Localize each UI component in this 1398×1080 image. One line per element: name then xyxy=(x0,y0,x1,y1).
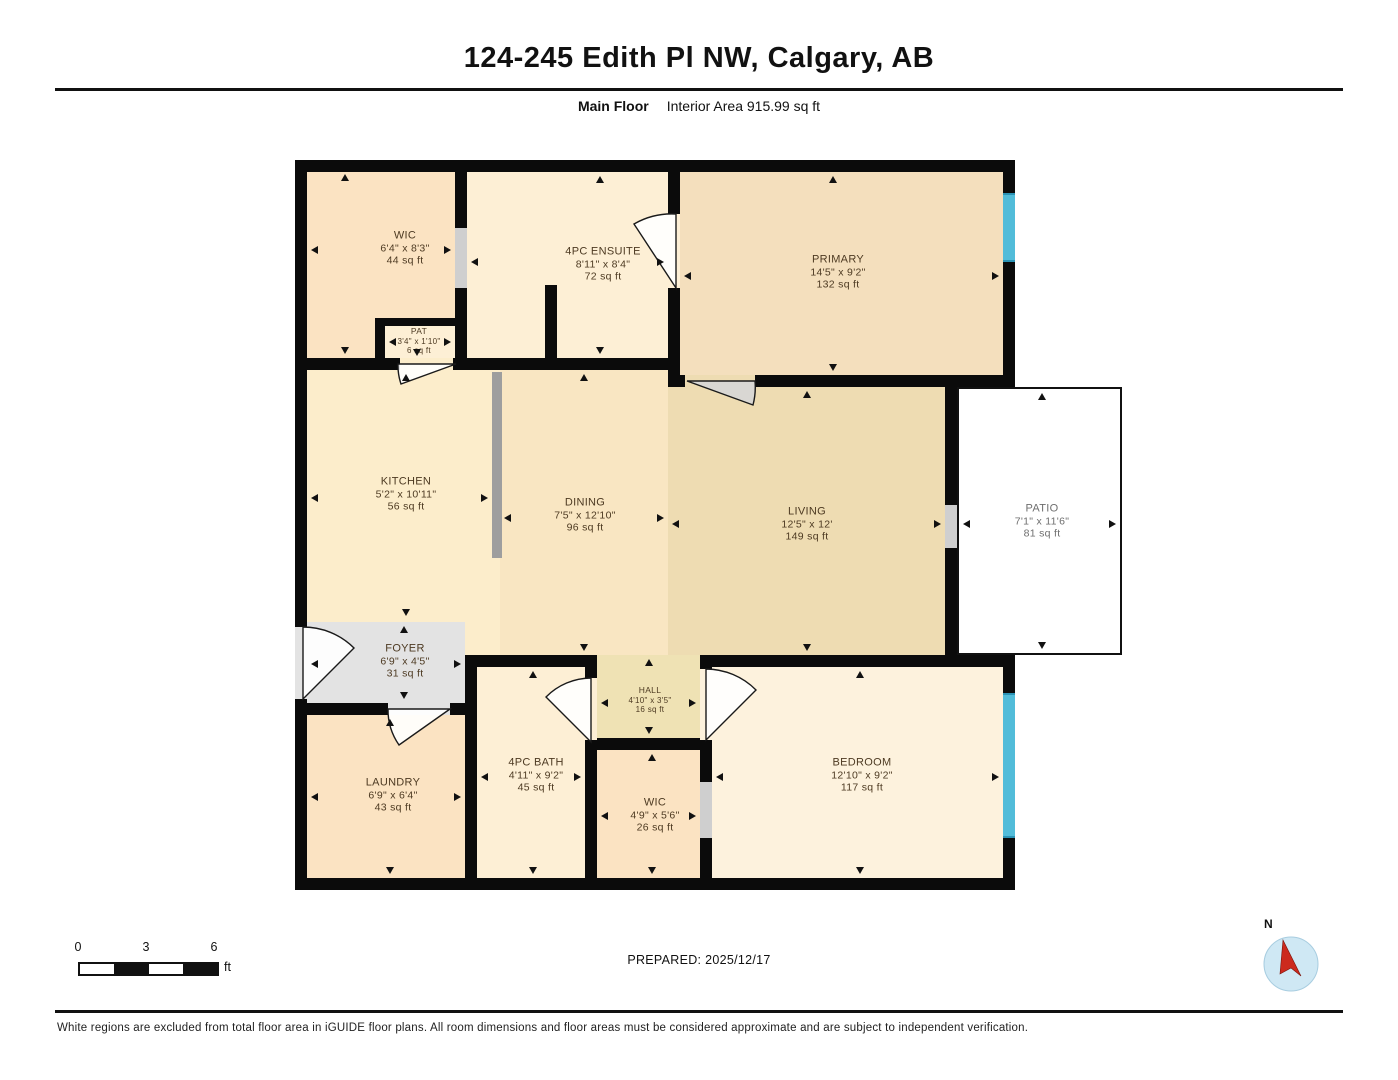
dimension-arrow xyxy=(311,660,318,668)
dimension-arrow xyxy=(413,349,421,356)
label-patio: PATIO7'1" x 11'6"81 sq ft xyxy=(1015,502,1070,540)
dimension-arrow xyxy=(803,644,811,651)
dimension-arrow xyxy=(389,338,396,346)
label-dining: DINING7'5" x 12'10"96 sq ft xyxy=(554,496,616,534)
dimension-arrow xyxy=(601,812,608,820)
label-foyer: FOYER6'9" x 4'5"31 sq ft xyxy=(380,642,429,680)
dimension-arrow xyxy=(596,176,604,183)
dimension-arrow xyxy=(684,272,691,280)
dimension-arrow xyxy=(689,812,696,820)
label-wic-top: WIC6'4" x 8'3"44 sq ft xyxy=(380,229,429,267)
label-primary: PRIMARY14'5" x 9'2"132 sq ft xyxy=(810,253,865,291)
dimension-arrow xyxy=(580,374,588,381)
scale-tick-0: 0 xyxy=(75,940,82,954)
dimension-arrow xyxy=(400,692,408,699)
dimension-arrow xyxy=(829,364,837,371)
dimension-arrow xyxy=(444,338,451,346)
compass-north-label: N xyxy=(1264,917,1273,931)
dimension-arrow xyxy=(1038,642,1046,649)
dimension-arrow xyxy=(504,514,511,522)
label-laundry: LAUNDRY6'9" x 6'4"43 sq ft xyxy=(366,776,420,814)
label-bedroom: BEDROOM12'10" x 9'2"117 sq ft xyxy=(831,756,893,794)
label-living: LIVING12'5" x 12'149 sq ft xyxy=(781,505,832,543)
dimension-arrow xyxy=(454,793,461,801)
footer-divider xyxy=(55,1010,1343,1013)
dimension-arrow xyxy=(689,699,696,707)
dimension-arrow xyxy=(657,514,664,522)
label-hall: HALL4'10" x 3'5"16 sq ft xyxy=(628,686,671,715)
dimension-arrow xyxy=(481,773,488,781)
dimension-arrow xyxy=(648,867,656,874)
dimension-arrow xyxy=(1038,393,1046,400)
dimension-arrow xyxy=(803,391,811,398)
dimension-arrow xyxy=(341,174,349,181)
prepared-date: PREPARED: 2025/12/17 xyxy=(549,953,849,967)
label-kitchen: KITCHEN5'2" x 10'11"56 sq ft xyxy=(376,475,437,513)
dimension-arrow xyxy=(657,258,664,266)
dimension-arrow xyxy=(963,520,970,528)
dimension-arrow xyxy=(386,719,394,726)
dimension-arrow xyxy=(672,520,679,528)
dimension-arrow xyxy=(311,246,318,254)
dimension-arrow xyxy=(454,660,461,668)
dimension-arrow xyxy=(645,727,653,734)
dimension-arrow xyxy=(574,773,581,781)
scale-unit: ft xyxy=(224,960,231,974)
label-bath: 4PC BATH4'11" x 9'2"45 sq ft xyxy=(508,756,563,794)
dimension-arrow xyxy=(856,867,864,874)
primary-door-swing xyxy=(687,381,755,405)
dimension-arrow xyxy=(992,773,999,781)
dimension-arrow xyxy=(934,520,941,528)
dimension-arrow xyxy=(716,773,723,781)
dimension-arrow xyxy=(311,793,318,801)
scale-bar-segments xyxy=(78,962,219,976)
dimension-arrow xyxy=(341,347,349,354)
dimension-arrow xyxy=(645,659,653,666)
dimension-arrow xyxy=(580,644,588,651)
disclaimer-text: White regions are excluded from total fl… xyxy=(57,1022,1028,1034)
dimension-arrow xyxy=(311,494,318,502)
dimension-arrow xyxy=(601,699,608,707)
dimension-arrow xyxy=(400,626,408,633)
dimension-arrow xyxy=(481,494,488,502)
bath-door-swing xyxy=(546,678,591,742)
dimension-arrow xyxy=(402,374,410,381)
label-ensuite: 4PC ENSUITE8'11" x 8'4"72 sq ft xyxy=(565,245,640,283)
scale-tick-6: 6 xyxy=(211,940,218,954)
dimension-arrow xyxy=(856,671,864,678)
compass-icon: N xyxy=(1256,912,1328,1004)
bedroom-door-swing xyxy=(706,669,756,740)
dimension-arrow xyxy=(471,258,478,266)
dimension-arrow xyxy=(992,272,999,280)
label-wic-bottom: WIC4'9" x 5'6"26 sq ft xyxy=(630,796,679,834)
dimension-arrow xyxy=(402,609,410,616)
dimension-arrow xyxy=(829,176,837,183)
dimension-arrow xyxy=(596,347,604,354)
dimension-arrow xyxy=(386,867,394,874)
dimension-arrow xyxy=(648,754,656,761)
laundry-door-swing xyxy=(388,709,450,745)
door-swing-overlay xyxy=(0,0,1398,1080)
dimension-arrow xyxy=(1109,520,1116,528)
dimension-arrow xyxy=(529,867,537,874)
floor-plan-page: 124-245 Edith Pl NW, Calgary, AB Main Fl… xyxy=(0,0,1398,1080)
dimension-arrow xyxy=(529,671,537,678)
scale-tick-3: 3 xyxy=(143,940,150,954)
dimension-arrow xyxy=(444,246,451,254)
